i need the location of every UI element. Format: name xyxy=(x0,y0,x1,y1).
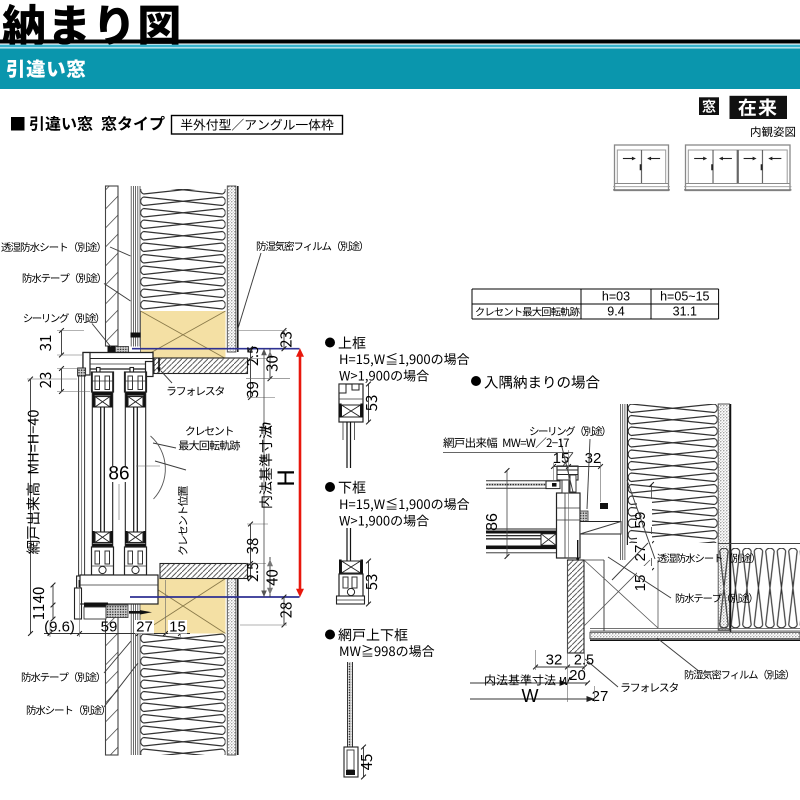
svg-text:15: 15 xyxy=(632,575,649,592)
svg-text:h=05~15: h=05~15 xyxy=(660,290,709,304)
svg-text:86: 86 xyxy=(484,513,501,531)
svg-text:20: 20 xyxy=(569,667,586,684)
svg-text:(9.6): (9.6) xyxy=(44,619,75,636)
svg-text:15: 15 xyxy=(169,619,186,636)
svg-text:27: 27 xyxy=(136,619,153,636)
svg-text:59: 59 xyxy=(101,619,118,636)
svg-text:W: W xyxy=(522,686,539,706)
svg-text:h=03: h=03 xyxy=(602,290,630,304)
svg-text:59: 59 xyxy=(632,512,649,529)
svg-text:32: 32 xyxy=(585,450,602,467)
svg-text:h: h xyxy=(258,422,275,430)
svg-text:9.4: 9.4 xyxy=(607,305,624,319)
svg-text:27: 27 xyxy=(592,688,609,705)
svg-text:32: 32 xyxy=(546,652,563,669)
svg-text:27: 27 xyxy=(632,545,649,562)
svg-text:31.1: 31.1 xyxy=(673,305,697,319)
svg-text:H: H xyxy=(273,469,300,486)
svg-text:86: 86 xyxy=(108,464,129,485)
